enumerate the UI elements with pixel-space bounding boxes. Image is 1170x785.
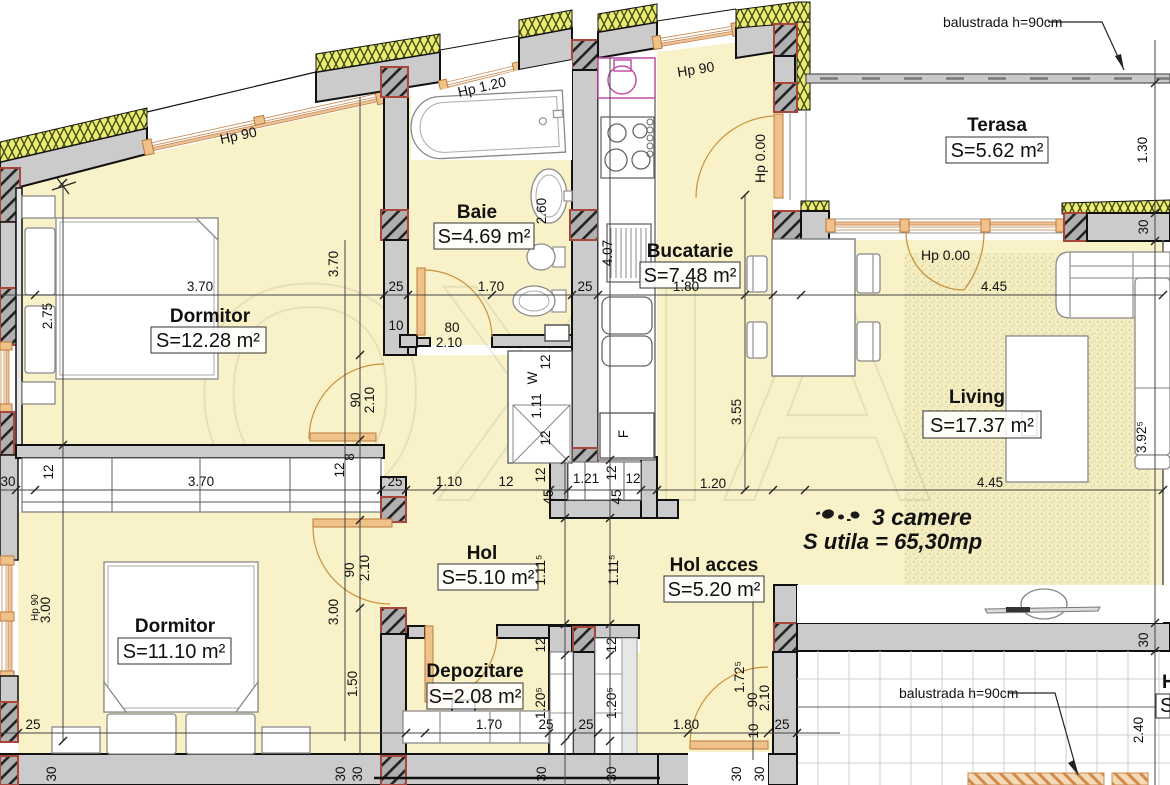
svg-text:1.80: 1.80 [673,279,699,294]
svg-text:45: 45 [609,489,624,504]
svg-text:12: 12 [332,462,347,477]
svg-text:90: 90 [348,392,363,407]
svg-text:Hol: Hol [467,543,498,564]
svg-text:25: 25 [578,717,593,732]
svg-text:S=5.20 m²: S=5.20 m² [668,579,761,601]
svg-text:25: 25 [25,717,40,732]
svg-text:S=12.28 m²: S=12.28 m² [156,330,260,352]
svg-text:2.75: 2.75 [40,303,55,329]
svg-text:4.45: 4.45 [977,475,1003,490]
svg-text:1.11⁵: 1.11⁵ [533,555,548,586]
svg-text:30: 30 [752,766,767,781]
svg-text:1.80: 1.80 [673,717,699,732]
svg-text:S utila = 65,30mp: S utila = 65,30mp [803,529,982,554]
svg-text:2.10: 2.10 [757,685,772,711]
svg-text:H: H [1162,672,1170,693]
svg-text:2.10: 2.10 [362,387,377,413]
svg-text:25: 25 [388,279,403,294]
svg-text:80: 80 [444,320,459,335]
svg-text:10: 10 [388,318,403,333]
svg-text:4.45: 4.45 [981,279,1007,294]
svg-text:25: 25 [387,474,402,489]
svg-text:balustrada h=90cm: balustrada h=90cm [943,14,1062,30]
svg-text:1.11⁵: 1.11⁵ [606,555,621,586]
svg-text:3.00: 3.00 [38,597,53,623]
svg-text:Terasa: Terasa [967,115,1027,136]
svg-text:4.07: 4.07 [600,240,615,266]
svg-text:3.55: 3.55 [729,399,744,425]
svg-text:10: 10 [746,723,761,738]
svg-text:30: 30 [604,766,619,781]
svg-text:1.50: 1.50 [345,671,360,697]
svg-text:S=11.10 m²: S=11.10 m² [123,641,226,663]
svg-text:30: 30 [44,766,59,781]
svg-text:Hp 0.00: Hp 0.00 [752,134,768,183]
svg-text:S=5.62 m²: S=5.62 m² [951,140,1044,162]
svg-text:12: 12 [533,467,548,482]
svg-text:30: 30 [534,766,549,781]
svg-text:2.60: 2.60 [534,198,549,224]
svg-text:45: 45 [541,489,556,504]
svg-text:3 camere: 3 camere [872,504,972,530]
svg-text:1.70: 1.70 [478,279,504,294]
svg-text:90: 90 [342,562,357,577]
svg-text:1.20⁵: 1.20⁵ [604,687,619,719]
svg-text:S=4.69 m²: S=4.69 m² [438,226,531,248]
svg-text:Dormitor: Dormitor [170,306,251,327]
svg-text:1.30: 1.30 [1135,137,1150,163]
svg-text:Dormitor: Dormitor [135,616,216,637]
svg-text:12: 12 [604,465,619,480]
svg-text:8: 8 [342,453,357,461]
svg-text:Hol acces: Hol acces [670,555,759,576]
svg-text:25: 25 [774,717,789,732]
svg-text:25: 25 [577,279,592,294]
svg-text:1.10: 1.10 [436,474,462,489]
svg-text:1.20: 1.20 [700,476,726,491]
svg-text:S=5.10 m²: S=5.10 m² [442,567,535,589]
svg-text:F: F [616,430,631,438]
svg-text:30: 30 [1136,219,1151,234]
svg-text:12: 12 [604,637,619,652]
svg-text:3.70: 3.70 [188,474,214,489]
svg-text:1.11: 1.11 [529,393,544,418]
svg-text:2.10: 2.10 [357,555,372,581]
svg-text:30: 30 [1136,632,1151,647]
svg-text:3.00: 3.00 [326,599,341,625]
svg-text:2.10: 2.10 [436,335,462,350]
svg-text:S=17.37 m²: S=17.37 m² [930,415,1034,437]
svg-text:12: 12 [41,464,56,479]
svg-text:Living: Living [949,387,1005,408]
svg-text:3.70: 3.70 [187,279,213,294]
svg-text:S: S [1160,695,1170,717]
svg-text:30: 30 [729,766,744,781]
svg-text:12: 12 [533,637,548,652]
svg-text:Depozitare: Depozitare [426,661,523,682]
svg-text:3.70: 3.70 [326,251,341,277]
svg-text:S=2.08 m²: S=2.08 m² [429,686,522,708]
svg-text:12: 12 [538,354,553,369]
svg-text:30: 30 [333,766,348,781]
svg-text:1.21: 1.21 [573,471,599,486]
svg-text:1.20⁵: 1.20⁵ [533,687,548,719]
svg-text:12: 12 [498,474,513,489]
svg-text:2.40: 2.40 [1131,717,1146,743]
svg-text:3.92⁵: 3.92⁵ [1134,421,1149,453]
svg-text:12: 12 [538,430,553,445]
svg-text:30: 30 [0,474,15,489]
svg-text:1.72⁵: 1.72⁵ [732,661,747,693]
svg-text:12: 12 [625,471,640,486]
svg-text:W: W [525,371,540,384]
svg-text:Bucatarie: Bucatarie [647,241,734,262]
svg-text:Hp 0.00: Hp 0.00 [921,247,970,263]
svg-text:Baie: Baie [457,202,497,223]
svg-text:balustrada h=90cm: balustrada h=90cm [899,685,1018,701]
svg-text:30: 30 [350,766,365,781]
svg-text:1.70: 1.70 [476,717,502,732]
